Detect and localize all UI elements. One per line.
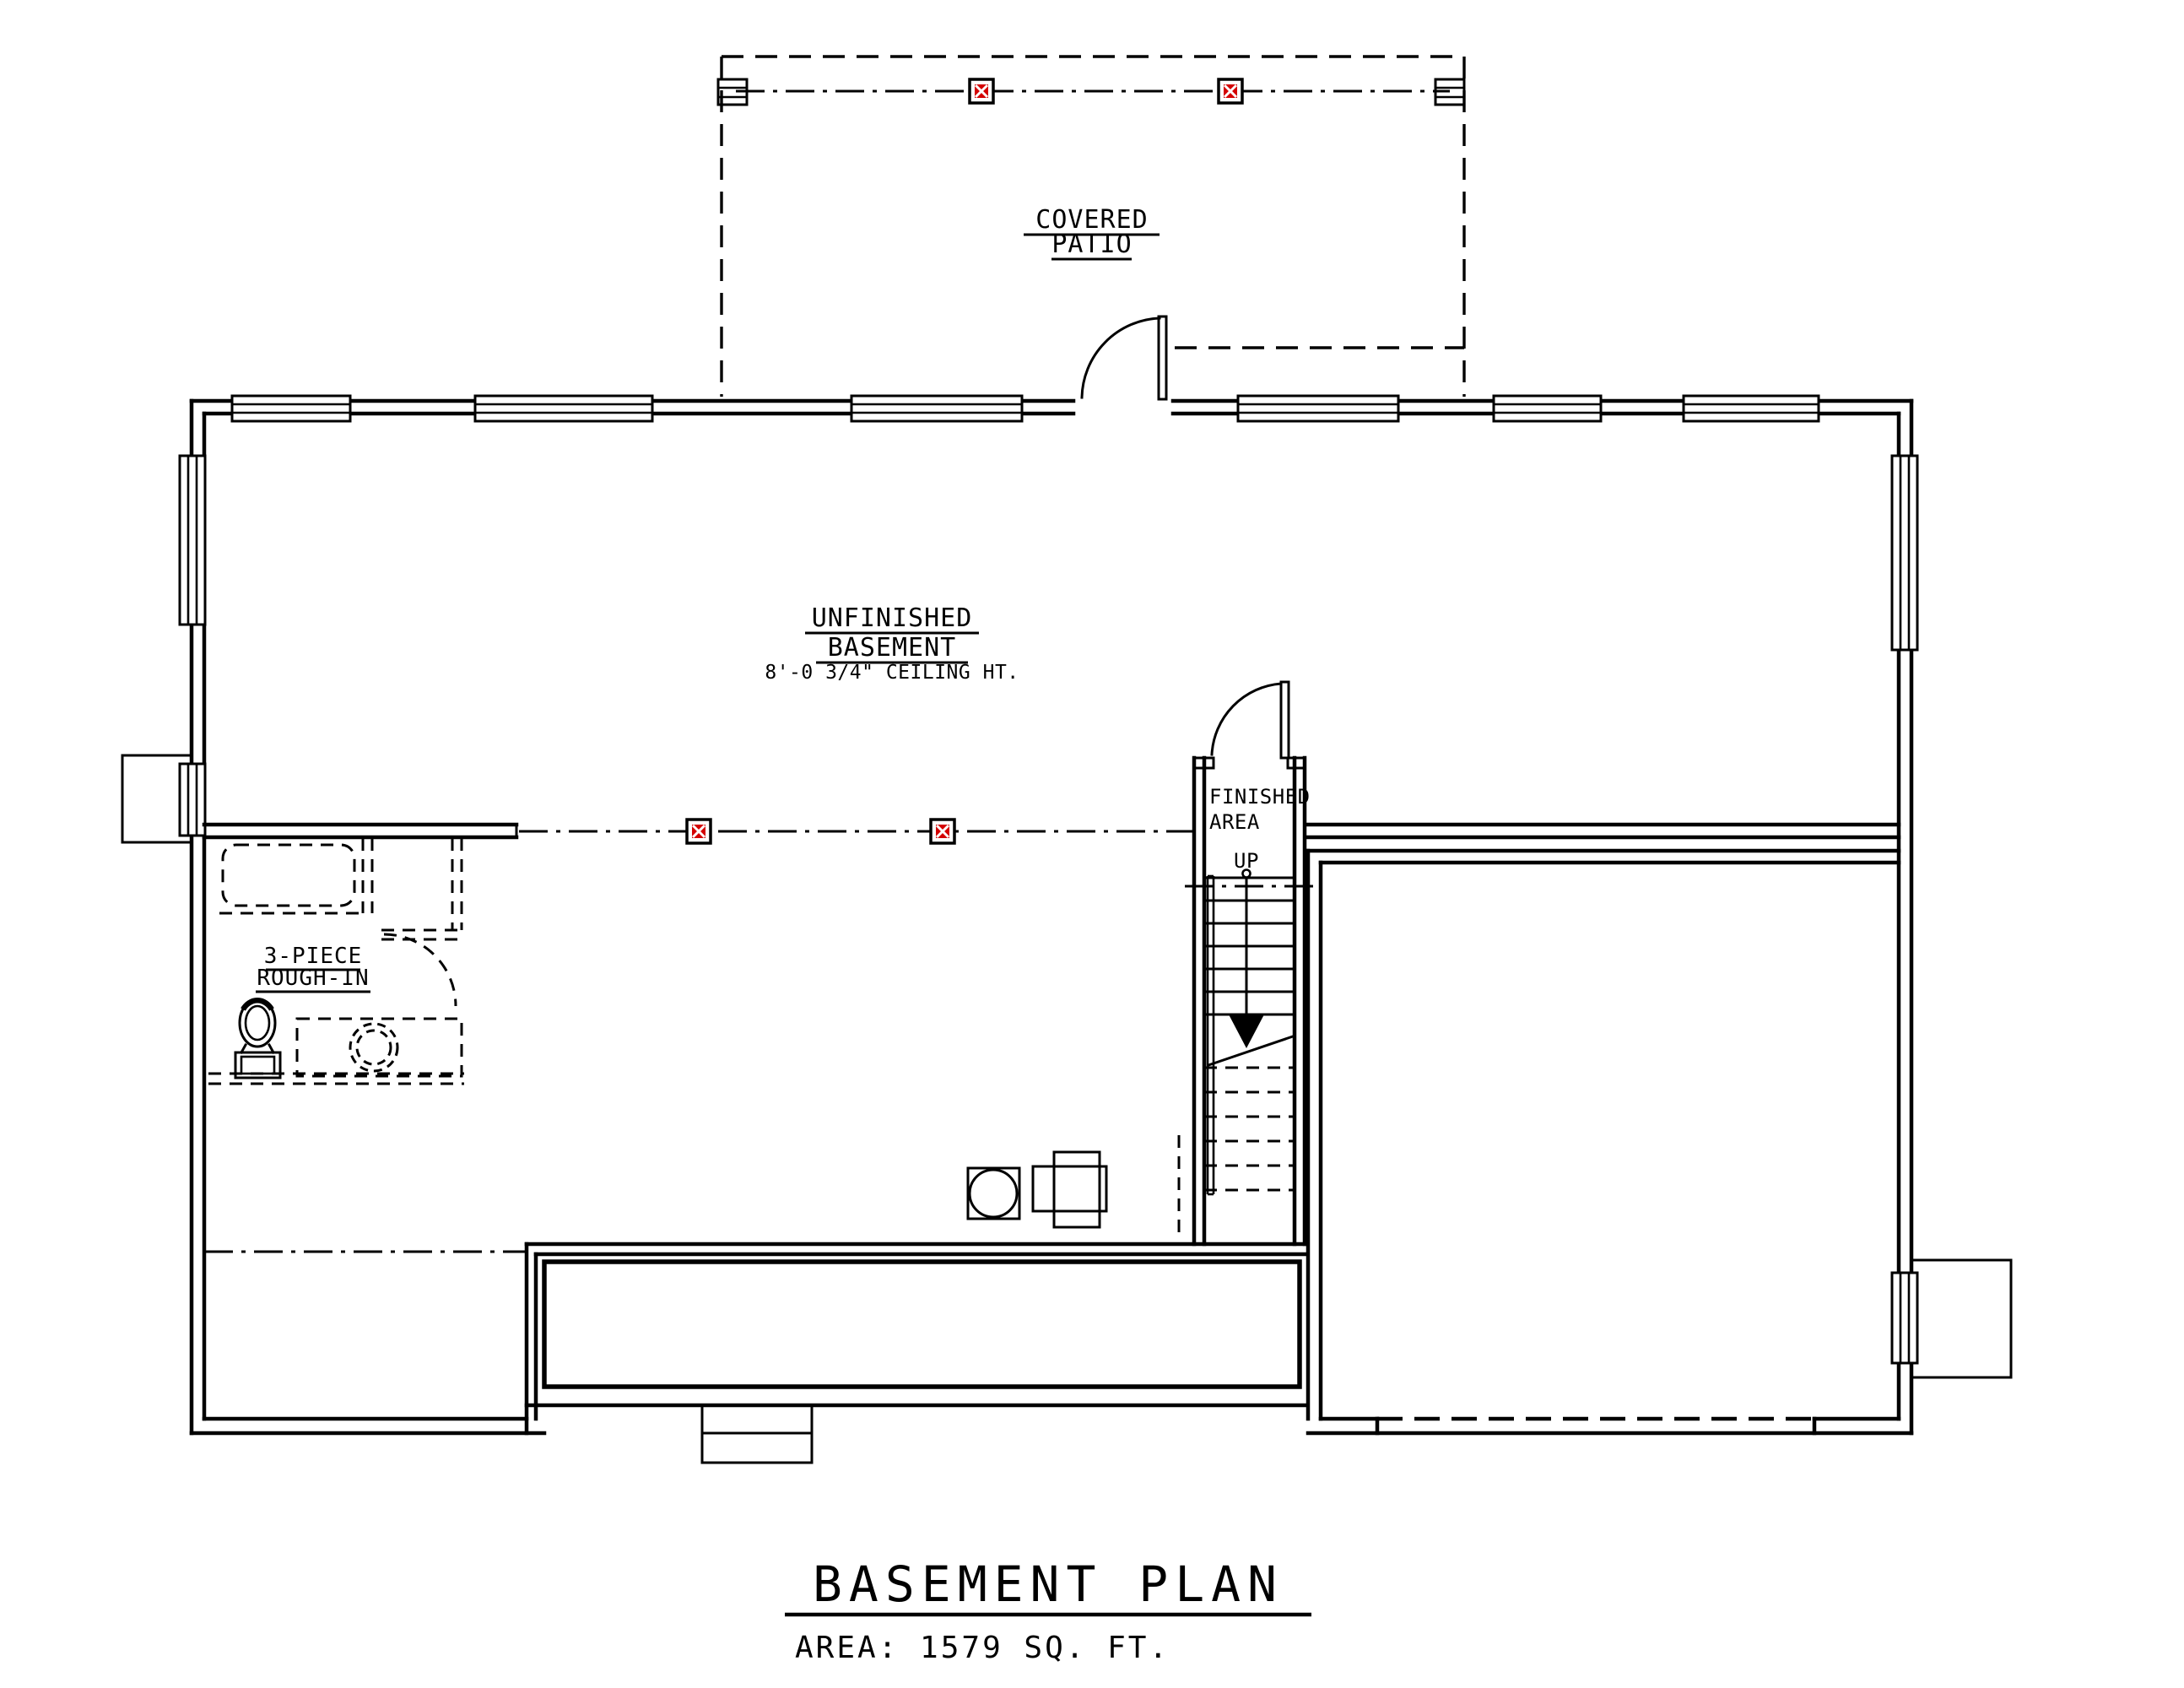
covered-patio-label: COVERED PATIO: [1024, 205, 1160, 259]
svg-text:8'-0 3/4" CEILING HT.: 8'-0 3/4" CEILING HT.: [765, 662, 1019, 684]
svg-text:ROUGH-IN: ROUGH-IN: [257, 966, 369, 991]
garage-foundation-walls: [1306, 825, 1899, 1419]
toilet: [235, 999, 280, 1078]
basement-beam-centerline: [204, 831, 1316, 1252]
vanity-sink: [297, 1019, 462, 1076]
unfinished-basement-label: UNFINISHED BASEMENT 8'-0 3/4" CEILING HT…: [765, 603, 1019, 684]
drawing-sheet: COVERED PATIO: [0, 0, 2184, 1688]
svg-text:UP: UP: [1234, 849, 1259, 873]
up-label: UP: [1234, 849, 1259, 873]
stairs: [1179, 878, 1295, 1241]
svg-text:FINISHED: FINISHED: [1209, 785, 1311, 809]
furnace: [1033, 1152, 1106, 1227]
window: [1238, 396, 1398, 421]
window: [180, 764, 205, 836]
bathtub: [219, 845, 363, 913]
junction-box-icon: [687, 820, 711, 843]
page-title: BASEMENT PLAN: [813, 1555, 1284, 1613]
patio-door: [1082, 316, 1166, 399]
window: [1684, 396, 1819, 421]
basement-floor-plan: COVERED PATIO: [0, 0, 2184, 1688]
window: [180, 456, 205, 625]
junction-box-icon: [970, 79, 993, 103]
svg-text:BASEMENT: BASEMENT: [828, 633, 957, 663]
stoop-steps: [702, 1405, 812, 1463]
window: [1494, 396, 1601, 421]
exterior-walls: [192, 401, 1911, 1433]
window: [475, 396, 652, 421]
junction-box-icon: [931, 820, 954, 843]
window: [851, 396, 1022, 421]
window: [1892, 456, 1917, 650]
window: [232, 396, 350, 421]
area-note: AREA: 1579 SQ. FT.: [795, 1631, 1170, 1665]
svg-text:UNFINISHED: UNFINISHED: [812, 603, 973, 633]
bathroom-walls: [204, 825, 516, 837]
water-heater: [968, 1168, 1019, 1219]
title-block: BASEMENT PLAN AREA: 1579 SQ. FT.: [785, 1555, 1311, 1665]
window-well: [1911, 1260, 2011, 1377]
svg-text:PATIO: PATIO: [1051, 230, 1132, 259]
stair-direction-arrow-icon: [1229, 870, 1264, 1049]
rough-in-label: 3-PIECE ROUGH-IN: [256, 944, 370, 992]
stair-door: [1212, 682, 1289, 758]
bathroom-door-arc: [384, 934, 456, 1006]
svg-text:AREA: AREA: [1209, 810, 1260, 834]
junction-box-icon: [1219, 79, 1242, 103]
window: [1892, 1273, 1917, 1363]
